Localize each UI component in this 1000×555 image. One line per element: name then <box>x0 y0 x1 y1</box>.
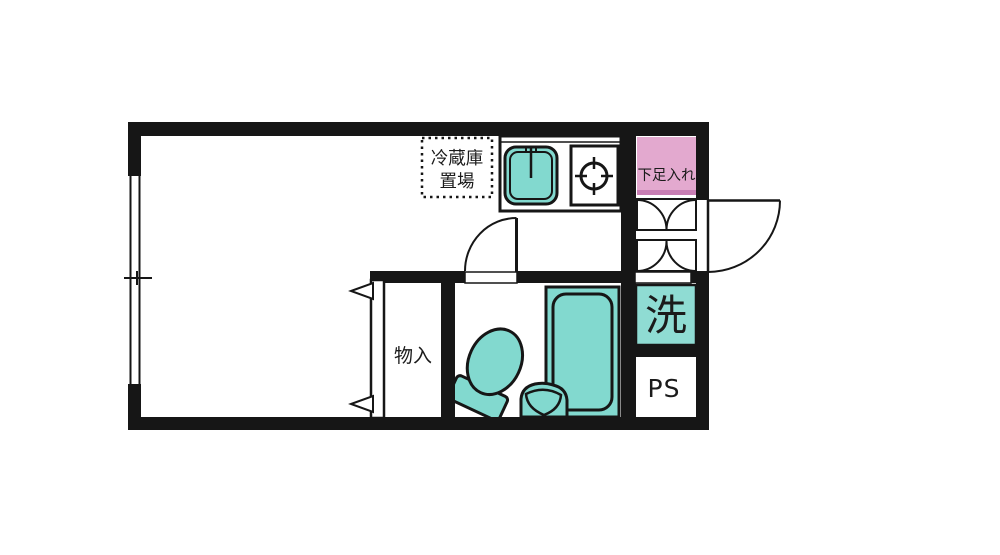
top-wall <box>128 122 709 136</box>
shoe-storage-label: 下足入れ <box>638 167 696 184</box>
refrigerator-space-label-line2: 置場 <box>440 172 475 192</box>
closet-bath-divider-wall <box>441 283 455 417</box>
bathroom-door-icon <box>465 218 517 283</box>
right-wall-upper <box>696 122 709 200</box>
bath-block-top-wall-right <box>517 271 621 283</box>
right-wall-lower <box>696 271 709 430</box>
entrance-step-strip <box>635 272 691 283</box>
entry-door-icon <box>708 200 780 272</box>
entrance-bottom-wall <box>690 271 709 283</box>
closet-door-icon <box>351 280 384 418</box>
left-wall-upper <box>128 122 141 176</box>
pipe-space-label: PS <box>648 374 681 403</box>
floor-plan: 冷蔵庫 置場 下足入れ 物入 洗 PS <box>0 0 1000 555</box>
closet-label: 物入 <box>394 345 432 367</box>
closet-door-arrow-top <box>351 283 373 299</box>
closet-door-arrow-bottom <box>351 396 373 412</box>
shoe-storage-accent-strip <box>637 190 696 195</box>
window-icon <box>124 176 152 384</box>
washing-machine-label: 洗 <box>645 291 687 340</box>
bottom-wall <box>128 417 709 430</box>
washer-ps-divider-wall <box>634 345 696 357</box>
floor-plan-drawing: 冷蔵庫 置場 下足入れ 物入 洗 PS <box>0 0 1000 555</box>
shoe-cabinet-doors-icon <box>637 199 696 271</box>
refrigerator-space-label-line1: 冷蔵庫 <box>431 149 484 169</box>
kitchen-entrance-partition <box>621 136 636 417</box>
